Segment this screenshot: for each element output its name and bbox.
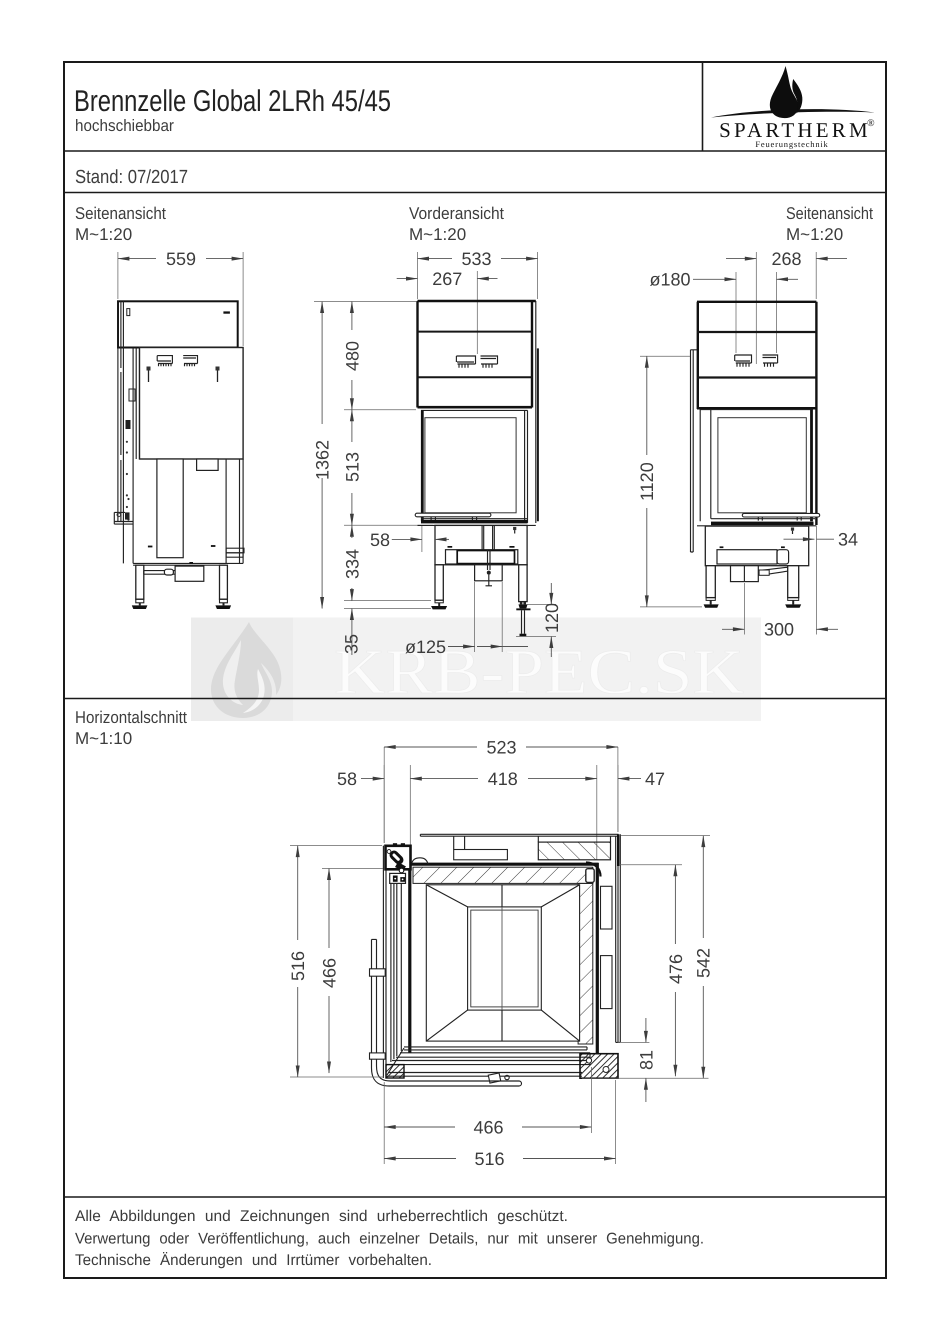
svg-text:1120: 1120 [637, 462, 657, 501]
svg-text:Seitenansicht: Seitenansicht [786, 204, 873, 223]
svg-text:516: 516 [288, 951, 308, 981]
svg-text:M~1:20: M~1:20 [409, 225, 466, 244]
svg-text:M~1:10: M~1:10 [75, 729, 132, 748]
svg-text:Alle Abbildungen und Zeichnung: Alle Abbildungen und Zeichnungen sind ur… [75, 1208, 568, 1225]
svg-text:516: 516 [474, 1149, 504, 1169]
svg-text:ø125: ø125 [405, 637, 446, 657]
svg-text:480: 480 [342, 341, 362, 371]
svg-text:58: 58 [370, 530, 390, 550]
svg-text:®: ® [867, 118, 875, 129]
svg-text:476: 476 [666, 954, 686, 984]
svg-text:Seitenansicht: Seitenansicht [75, 204, 166, 223]
svg-text:58: 58 [337, 769, 357, 789]
svg-text:Vorderansicht: Vorderansicht [409, 204, 504, 223]
svg-text:466: 466 [319, 958, 339, 988]
svg-text:Brennzelle Global 2LRh 45/4: Brennzelle Global 2LRh 45/45 [74, 85, 391, 118]
svg-text:542: 542 [694, 948, 714, 978]
svg-text:268: 268 [771, 249, 801, 269]
svg-text:34: 34 [838, 530, 858, 550]
svg-text:559: 559 [166, 249, 196, 269]
svg-text:267: 267 [432, 269, 462, 289]
svg-text:35: 35 [342, 634, 362, 654]
svg-text:hochschiebbar: hochschiebbar [75, 117, 174, 135]
svg-text:1362: 1362 [313, 440, 333, 480]
svg-text:513: 513 [342, 452, 362, 482]
svg-text:Horizontalschnitt: Horizontalschnitt [75, 708, 187, 727]
svg-text:M~1:20: M~1:20 [786, 225, 843, 244]
svg-text:KRB-PEC.SK: KRB-PEC.SK [334, 636, 744, 707]
svg-text:523: 523 [486, 737, 516, 757]
svg-text:466: 466 [473, 1117, 503, 1137]
svg-text:81: 81 [636, 1050, 656, 1070]
svg-text:Feuerungstechnik: Feuerungstechnik [755, 139, 828, 149]
svg-text:Stand: 07/2017: Stand: 07/2017 [75, 167, 188, 188]
svg-text:418: 418 [488, 769, 518, 789]
svg-text:533: 533 [461, 249, 491, 269]
svg-text:ø180: ø180 [649, 270, 690, 290]
svg-text:334: 334 [342, 549, 362, 579]
svg-text:Technische Änderungen und Irrt: Technische Änderungen und Irrtümer vorbe… [75, 1252, 432, 1269]
svg-text:300: 300 [764, 620, 794, 640]
svg-text:120: 120 [542, 603, 562, 633]
svg-text:M~1:20: M~1:20 [75, 225, 132, 244]
svg-text:Verwertung oder Veröffentlichu: Verwertung oder Veröffentlichung, auch e… [75, 1231, 704, 1248]
svg-text:47: 47 [645, 769, 665, 789]
